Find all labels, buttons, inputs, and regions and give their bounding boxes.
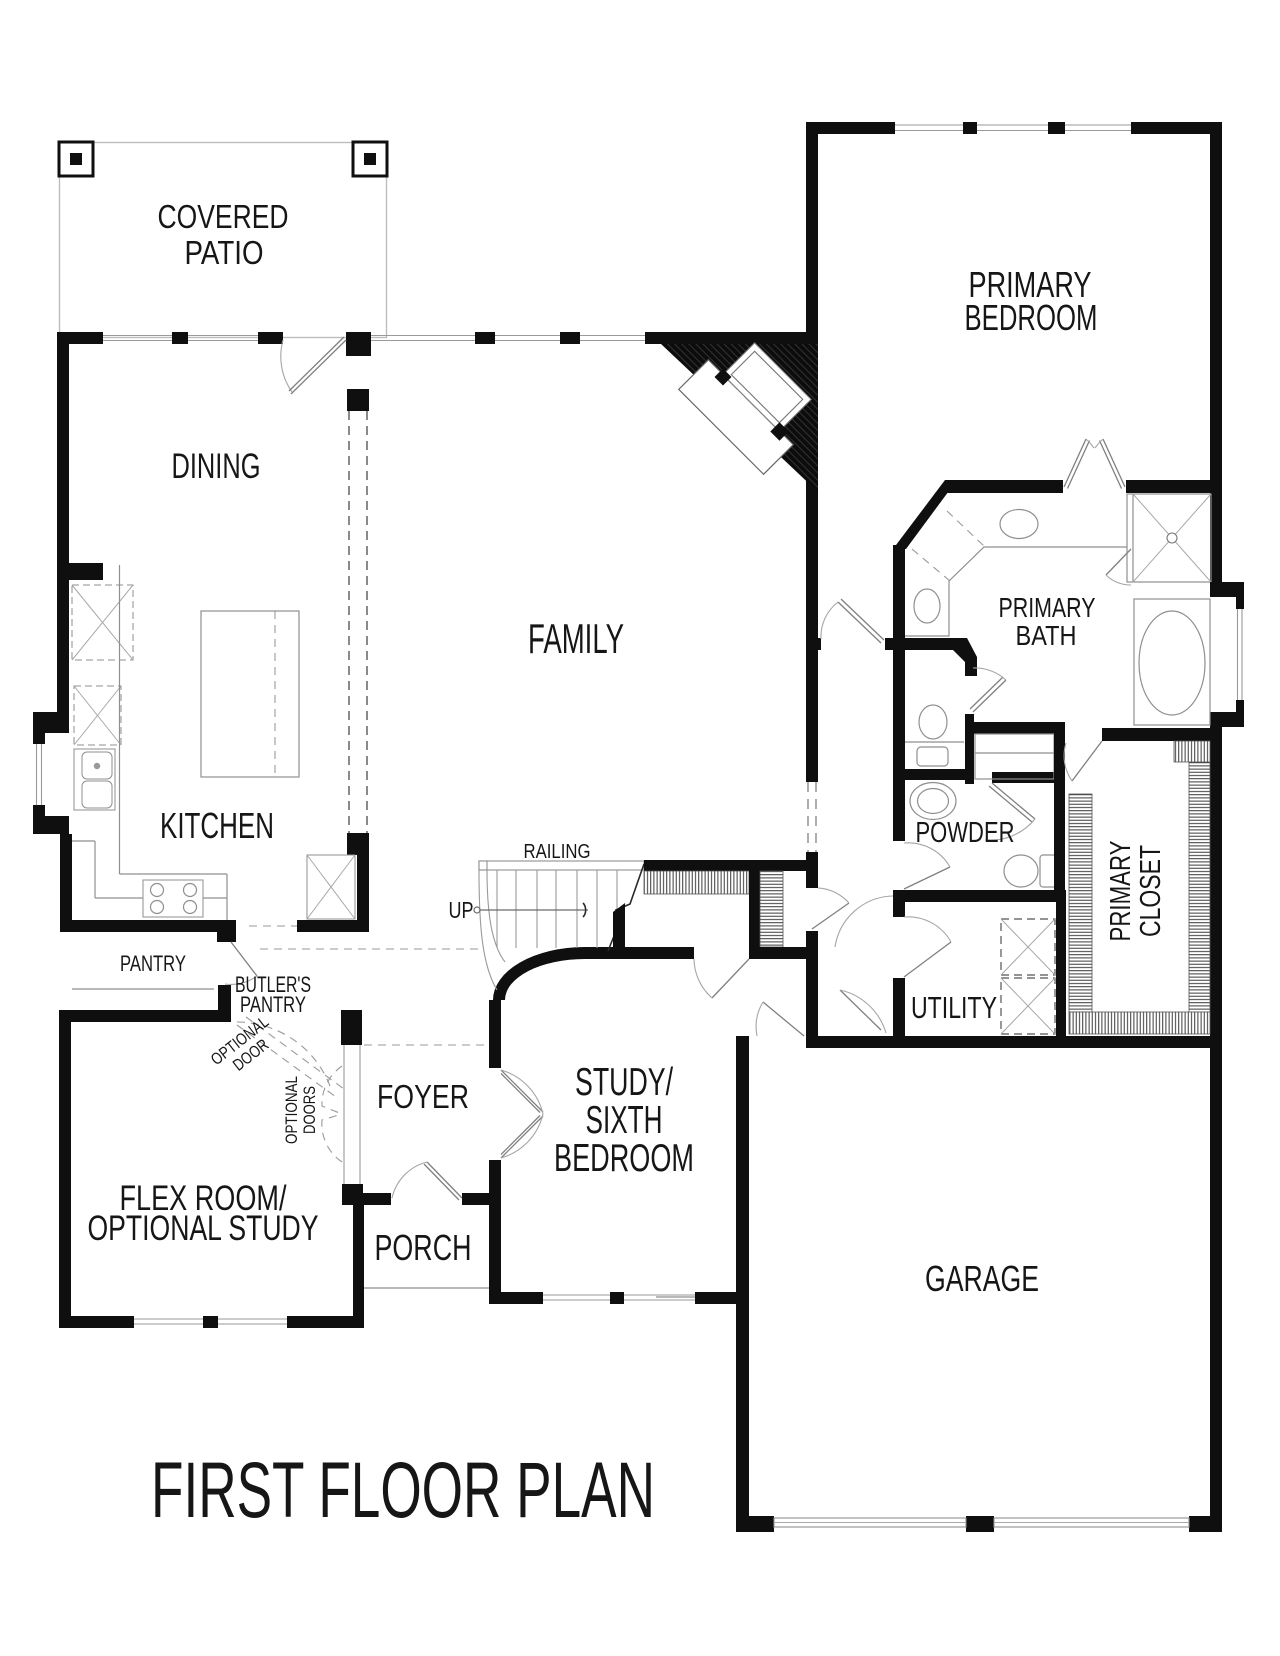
svg-text:PORCH: PORCH xyxy=(375,1227,472,1268)
svg-text:PATIO: PATIO xyxy=(185,235,264,272)
svg-text:OPTIONAL: OPTIONAL xyxy=(283,1076,301,1144)
svg-text:STUDY/: STUDY/ xyxy=(575,1061,673,1104)
svg-text:BEDROOM: BEDROOM xyxy=(965,297,1098,338)
svg-text:KITCHEN: KITCHEN xyxy=(160,805,274,846)
svg-text:FIRST FLOOR PLAN: FIRST FLOOR PLAN xyxy=(151,1445,655,1534)
svg-text:UTILITY: UTILITY xyxy=(911,990,997,1025)
svg-text:DINING: DINING xyxy=(172,447,261,486)
svg-text:GARAGE: GARAGE xyxy=(925,1258,1039,1299)
svg-text:PRIMARY: PRIMARY xyxy=(1105,841,1137,942)
svg-text:OPTIONAL STUDY: OPTIONAL STUDY xyxy=(88,1209,319,1248)
svg-text:UP: UP xyxy=(449,897,474,923)
svg-text:DOORS: DOORS xyxy=(301,1086,319,1134)
svg-text:FAMILY: FAMILY xyxy=(528,615,624,662)
svg-text:CLOSET: CLOSET xyxy=(1135,845,1167,937)
svg-text:PRIMARY: PRIMARY xyxy=(999,592,1096,623)
svg-text:SIXTH: SIXTH xyxy=(586,1099,663,1142)
svg-text:COVERED: COVERED xyxy=(158,199,289,236)
svg-text:POWDER: POWDER xyxy=(916,817,1015,849)
svg-text:FOYER: FOYER xyxy=(377,1078,469,1115)
svg-text:PANTRY: PANTRY xyxy=(240,992,306,1017)
svg-text:RAILING: RAILING xyxy=(524,840,591,863)
svg-text:PANTRY: PANTRY xyxy=(120,951,186,976)
svg-text:BEDROOM: BEDROOM xyxy=(554,1137,694,1180)
svg-text:BATH: BATH xyxy=(1016,620,1077,651)
